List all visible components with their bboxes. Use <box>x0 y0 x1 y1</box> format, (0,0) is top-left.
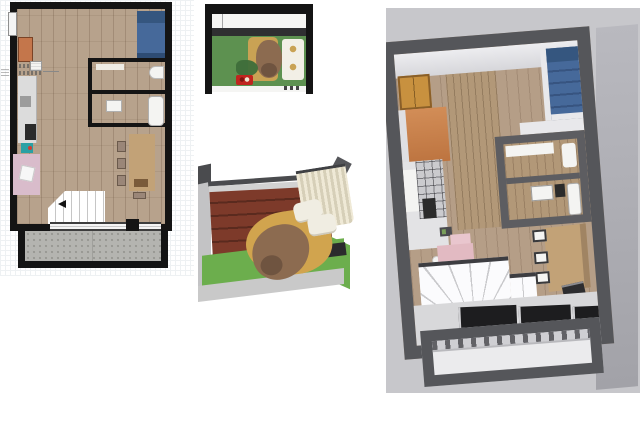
art-accent <box>442 229 446 234</box>
dog-pillow <box>284 59 302 75</box>
oven-3d <box>422 198 437 219</box>
label-scribble <box>19 71 43 75</box>
bed-pillow <box>137 11 165 23</box>
bed-blue-3d <box>546 46 584 120</box>
dining-chair <box>117 175 126 186</box>
dining-chair-3d <box>535 271 550 284</box>
cabinet-top-view <box>18 37 33 62</box>
toilet-3d <box>561 143 577 168</box>
wood-cabinet-3d <box>398 74 433 110</box>
pet-plan-green-floor <box>212 36 306 86</box>
dining-table-top-view <box>129 134 155 191</box>
bathtub-top-view <box>148 96 164 126</box>
dining-table-3d <box>544 223 591 292</box>
dog-pillow <box>284 41 302 57</box>
teal-cabinet <box>21 143 33 153</box>
dining-chair-3d <box>534 251 549 264</box>
pet-plan-view <box>205 4 313 94</box>
balcony-terrace <box>18 231 168 268</box>
red-accent-dot <box>28 146 32 150</box>
kitchen-appliance-gray <box>20 96 31 107</box>
dimension-line <box>43 71 59 72</box>
dog-food-bowl <box>236 75 253 85</box>
orange-wall-face <box>402 107 450 164</box>
bathroom-divider-wall <box>92 90 166 94</box>
table-item <box>134 179 148 187</box>
balcony-joint-line <box>92 231 93 261</box>
edge-dashes <box>284 86 302 90</box>
stairs-direction-arrow <box>58 200 66 208</box>
oven-top-view <box>25 124 36 140</box>
dining-chair <box>133 192 146 199</box>
terrace-render-view <box>196 153 354 305</box>
left-wall-window <box>8 12 17 36</box>
plant-top-view <box>236 60 258 76</box>
sink-mirror-slot <box>555 184 566 198</box>
margin-annotation-marks <box>1 67 9 76</box>
bathroom-shelf <box>96 64 124 70</box>
dog-top-view <box>256 40 282 78</box>
bathroom-counter <box>505 142 554 157</box>
pet-plan-white-band <box>212 14 306 28</box>
bathroom-sink <box>106 100 122 112</box>
toilet-top-view <box>149 66 164 79</box>
sliding-window-band <box>50 222 161 231</box>
dining-chair <box>117 141 126 152</box>
apartment-walls-frame <box>386 26 614 359</box>
bathtub-3d <box>566 183 581 216</box>
pet-plan-bottom-band <box>212 86 306 92</box>
dining-chair-3d <box>532 229 547 242</box>
dining-chair <box>117 158 126 169</box>
pet-plan-dark-band <box>212 28 306 36</box>
bathroom-block <box>88 58 170 127</box>
sink-unit-3d <box>531 185 554 202</box>
dog-pillow-3d <box>306 213 337 238</box>
dog-head <box>261 63 277 77</box>
bed-pillow <box>546 46 579 62</box>
wall-joint-line <box>222 14 223 28</box>
kitchen-sink-top-view <box>30 61 42 71</box>
design-views-canvas <box>0 0 640 430</box>
bathroom-box-3d <box>495 130 592 229</box>
overview-render-view <box>386 8 640 393</box>
dog-shadow <box>259 253 285 277</box>
bed-top-view <box>137 11 165 60</box>
